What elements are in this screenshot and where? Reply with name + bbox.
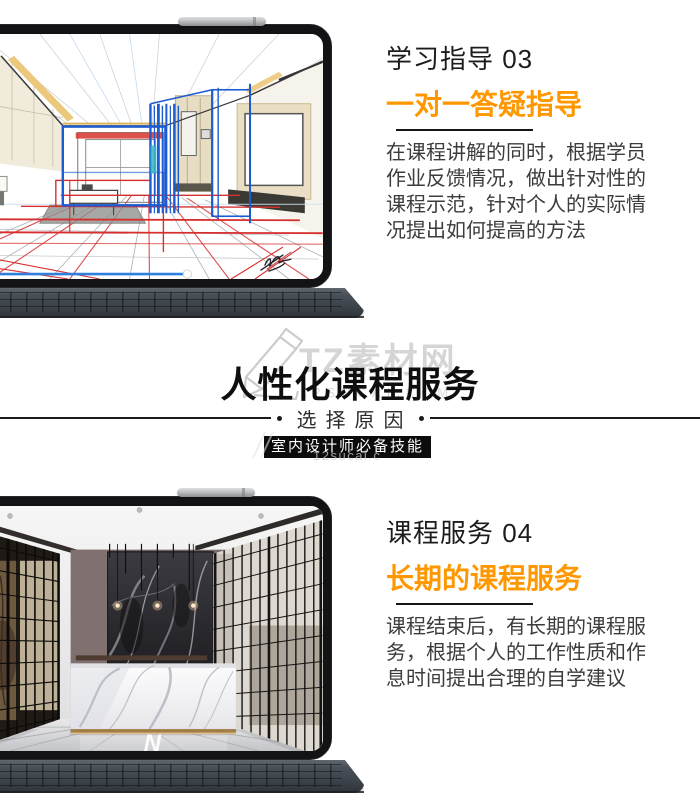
watermark-pencil-fragment-icon [249,430,275,460]
keyboard [0,760,364,793]
service-body: 课程结束后，有长期的课程服务，根据个人的工作性质和作息时间提出合理的自学建议 [386,614,662,692]
render-screen: N [0,506,323,751]
tablet-frame: N [0,496,332,760]
keyboard [0,288,364,318]
watermark-url-small: 12sucai.c [313,448,381,463]
divider-line-left [0,417,271,419]
keyboard-keys [0,292,342,312]
underline-rule [396,129,533,131]
keyboard-keys [0,764,342,787]
stylus-pencil-icon [178,17,266,26]
study-heading: 学习指导 03 [386,44,686,75]
service-subheading: 长期的课程服务 [386,562,686,596]
service-section-text: 课程服务 04 长期的课程服务 课程结束后，有长期的课程服务，根据个人的工作性质… [386,518,686,692]
divider-dot-left [277,416,282,421]
interior-sketch-image [0,34,323,279]
service-heading: 课程服务 04 [386,518,686,549]
divider: 选择原因 [0,406,700,430]
divider-line-right [430,417,700,419]
divider-dot-right [419,416,424,421]
divider-label: 选择原因 [288,404,413,433]
reception-hall-image: N [0,506,323,751]
study-body: 在课程讲解的同时，根据学员作业反馈情况，做出针对性的课程示范，针对个人的实际情况… [386,140,662,244]
tablet-frame [0,24,332,288]
study-section-text: 学习指导 03 一对一答疑指导 在课程讲解的同时，根据学员作业反馈情况，做出针对… [386,44,686,244]
floor-logo: N [144,730,162,751]
section-title: 人性化课程服务 [0,356,700,408]
study-subheading: 一对一答疑指导 [386,88,686,122]
stylus-pencil-icon [177,488,255,497]
underline-rule [396,603,533,605]
sketch-screen [0,34,323,279]
promo-page: 学习指导 03 一对一答疑指导 在课程讲解的同时，根据学员作业反馈情况，做出针对… [0,0,700,805]
